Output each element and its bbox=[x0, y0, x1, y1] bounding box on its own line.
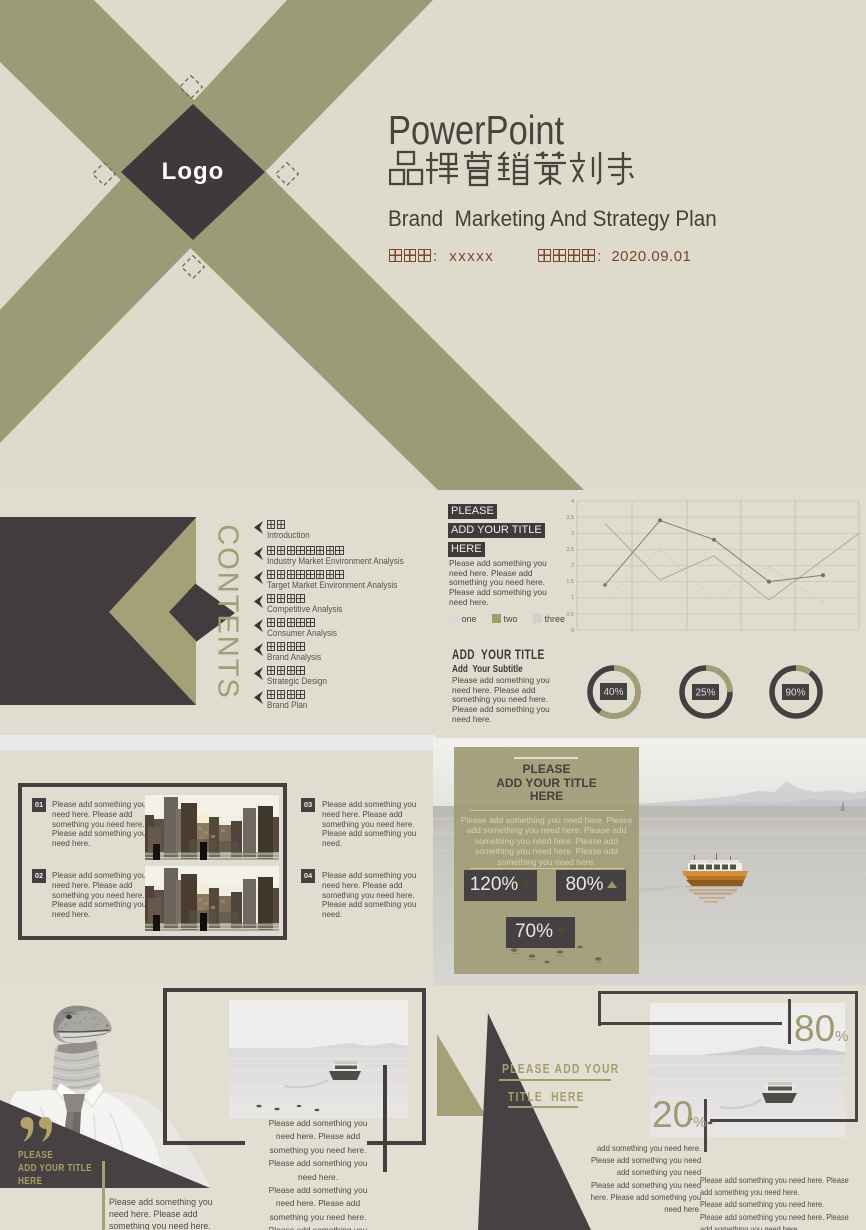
svg-text:0: 0 bbox=[571, 628, 574, 634]
svg-text:3: 3 bbox=[571, 531, 574, 537]
svg-text:1.5: 1.5 bbox=[566, 579, 574, 585]
svg-text:25%: 25% bbox=[695, 688, 715, 699]
svg-text:1: 1 bbox=[571, 595, 574, 601]
svg-text:90%: 90% bbox=[785, 688, 805, 699]
svg-text:40%: 40% bbox=[603, 687, 623, 698]
svg-text:2.5: 2.5 bbox=[566, 547, 574, 553]
svg-text:0.5: 0.5 bbox=[566, 612, 574, 618]
svg-text:4: 4 bbox=[571, 499, 574, 505]
svg-text:3.5: 3.5 bbox=[566, 515, 574, 521]
svg-text:2: 2 bbox=[571, 563, 574, 569]
